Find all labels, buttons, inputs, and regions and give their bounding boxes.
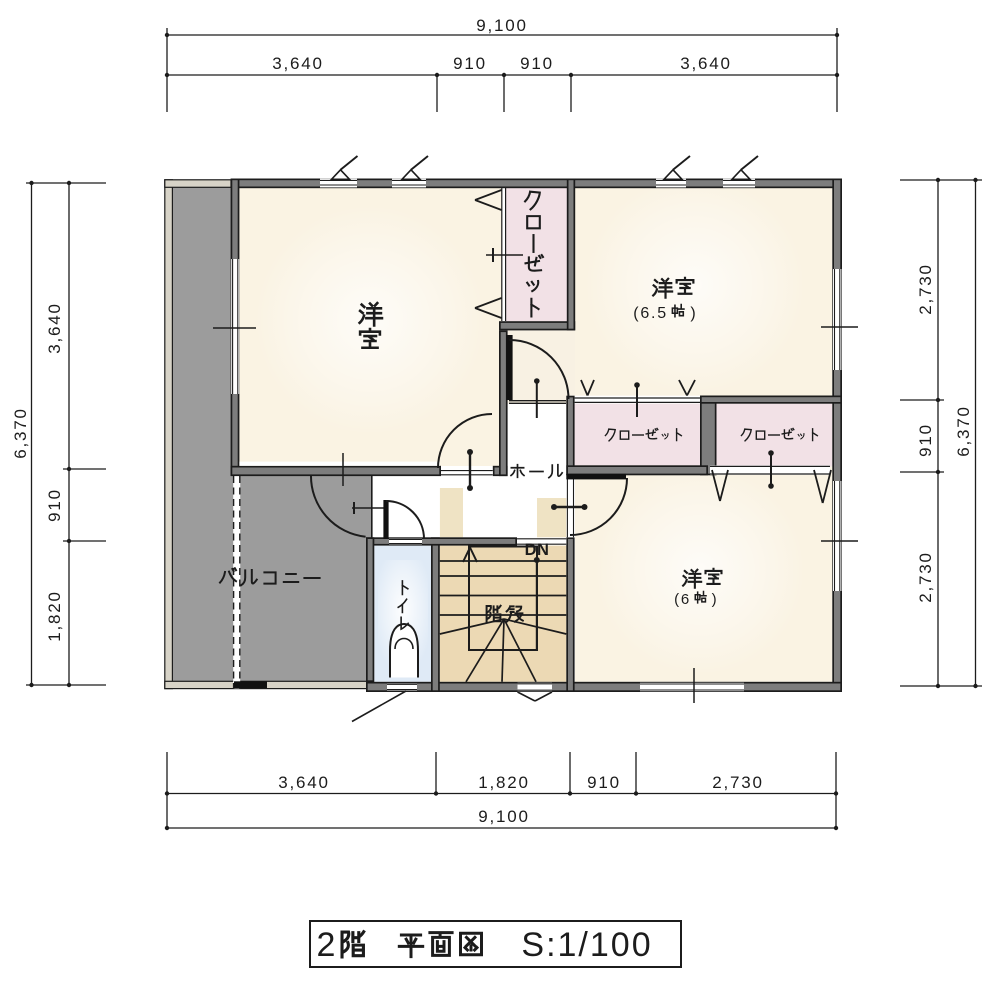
svg-text:910: 910 [916,423,935,457]
svg-text:(6.5: (6.5 [633,305,668,322]
svg-text:9,100: 9,100 [476,16,528,35]
svg-text:): ) [690,305,697,322]
svg-text:1,820: 1,820 [478,773,530,792]
svg-text:1,820: 1,820 [45,590,64,642]
svg-text:(6: (6 [674,591,691,608]
svg-text:3,640: 3,640 [45,302,64,354]
svg-text:6,370: 6,370 [954,405,973,457]
svg-text:S:1/100: S:1/100 [521,926,652,964]
svg-text:3,640: 3,640 [680,54,732,73]
svg-text:): ) [712,591,719,608]
svg-text:6,370: 6,370 [11,407,30,459]
svg-text:3,640: 3,640 [278,773,330,792]
svg-text:910: 910 [45,488,64,522]
svg-text:2,730: 2,730 [712,773,764,792]
svg-text:910: 910 [453,54,487,73]
svg-text:2: 2 [317,926,336,964]
svg-text:2,730: 2,730 [916,551,935,603]
svg-text:9,100: 9,100 [478,807,530,826]
svg-text:910: 910 [520,54,554,73]
svg-text:DN: DN [525,541,550,559]
svg-text:3,640: 3,640 [272,54,324,73]
svg-text:910: 910 [587,773,621,792]
svg-text:2,730: 2,730 [916,263,935,315]
